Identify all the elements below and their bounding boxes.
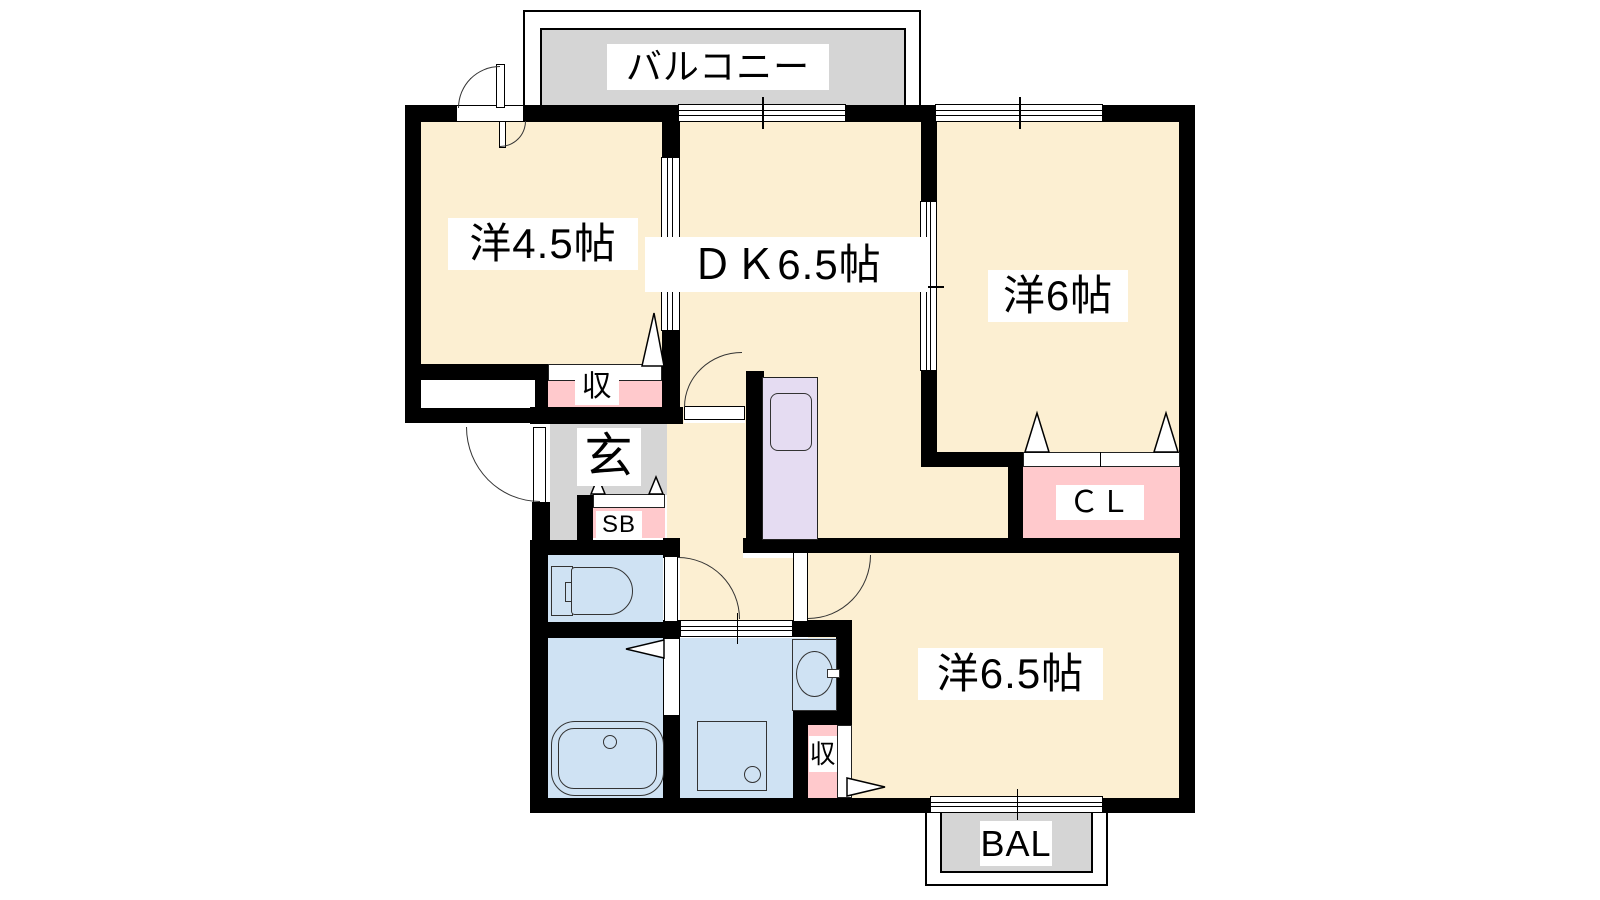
bathtub-drain bbox=[603, 735, 617, 749]
door-direction-triangle bbox=[648, 475, 664, 496]
door-direction-triangle bbox=[1023, 410, 1051, 454]
wall bbox=[836, 620, 852, 716]
wall bbox=[532, 622, 663, 638]
wall bbox=[663, 538, 680, 558]
dk-label: ＤＫ6.5帖 bbox=[645, 237, 928, 292]
balcony-top-label: バルコニー bbox=[607, 44, 829, 90]
room-6-label: 洋6帖 bbox=[988, 270, 1128, 322]
balcony-bottom-label: BAL bbox=[980, 821, 1052, 866]
doorway bbox=[457, 106, 523, 121]
porch-alcove bbox=[421, 380, 535, 408]
door-direction-triangle bbox=[845, 776, 887, 798]
wall bbox=[793, 711, 852, 725]
wall bbox=[1179, 105, 1195, 813]
wall bbox=[1008, 465, 1023, 538]
hallway-floor bbox=[680, 538, 743, 560]
closet-door-divider bbox=[1100, 452, 1101, 467]
floorplan-canvas: バルコニー 洋4.5帖 ＤＫ6.5帖 洋6帖 洋6.5帖 玄 収 SB ＣＬ 収… bbox=[0, 0, 1600, 900]
wall bbox=[743, 538, 1195, 553]
door-direction-triangle bbox=[1152, 410, 1180, 454]
window bbox=[935, 104, 1103, 122]
kitchen-sink bbox=[770, 393, 812, 451]
wall bbox=[530, 407, 683, 424]
wall bbox=[532, 501, 550, 542]
closet-45-label: 収 bbox=[575, 369, 619, 405]
entrance-label: 玄 bbox=[577, 428, 641, 486]
room-65-label: 洋6.5帖 bbox=[918, 648, 1103, 700]
window bbox=[678, 104, 846, 122]
hallway-floor bbox=[667, 424, 746, 538]
door-direction-triangle bbox=[640, 310, 666, 368]
dk-floor-pocket bbox=[922, 465, 1008, 538]
washbasin-tap bbox=[827, 669, 840, 678]
wall bbox=[577, 495, 593, 540]
washing-machine-drain bbox=[744, 766, 761, 783]
door-leaf bbox=[793, 552, 808, 622]
door-swing-arc bbox=[458, 66, 500, 108]
wall bbox=[663, 620, 680, 638]
toilet-door-leaf bbox=[664, 556, 678, 622]
window bbox=[930, 796, 1103, 813]
entrance-floor bbox=[550, 495, 577, 540]
door-direction-triangle bbox=[624, 638, 666, 660]
door-leaf bbox=[684, 406, 745, 420]
room-45-label: 洋4.5帖 bbox=[448, 218, 638, 270]
shoe-box-label: SB bbox=[596, 511, 642, 538]
sliding-door-washroom bbox=[680, 620, 793, 637]
closet-6-door bbox=[1023, 452, 1180, 467]
entrance-door-swing-arc bbox=[466, 427, 540, 502]
toilet-bowl bbox=[571, 567, 633, 615]
wall bbox=[530, 540, 680, 555]
wall bbox=[530, 540, 548, 813]
closet-65-label: 収 bbox=[809, 736, 837, 772]
wall bbox=[921, 370, 937, 453]
shoe-box-door bbox=[593, 494, 665, 508]
wall bbox=[663, 715, 680, 798]
closet-6-label: ＣＬ bbox=[1056, 485, 1144, 520]
